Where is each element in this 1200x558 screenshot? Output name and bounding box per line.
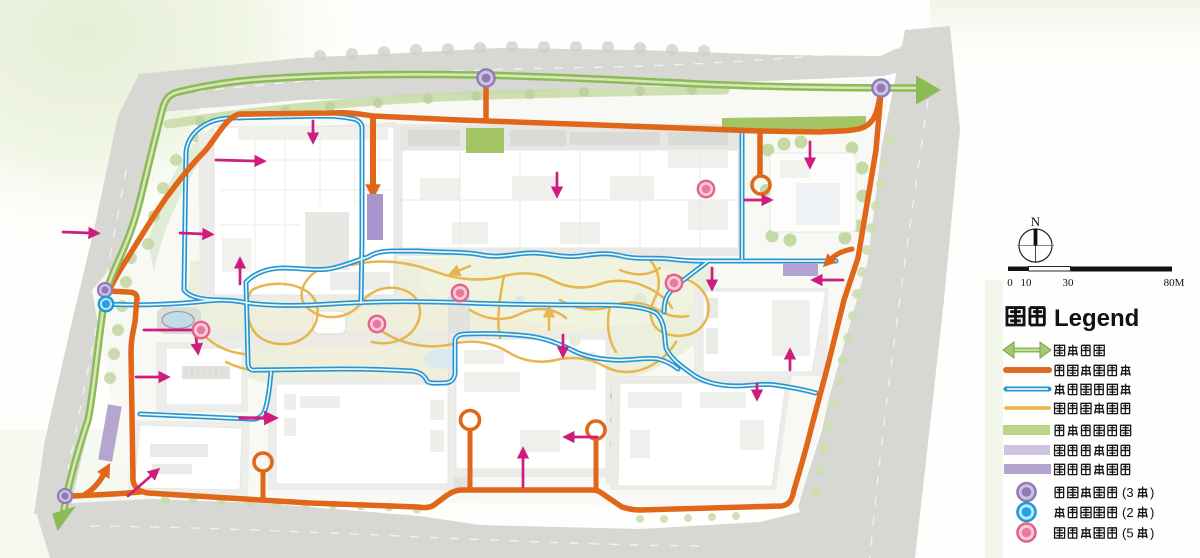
svg-text:Legend: Legend	[1054, 305, 1139, 332]
svg-text:0: 0	[1007, 277, 1013, 289]
svg-text:(5: (5	[1122, 526, 1134, 541]
svg-text:(3: (3	[1122, 485, 1134, 500]
svg-text:30: 30	[1063, 277, 1075, 289]
svg-text:(2: (2	[1122, 505, 1134, 520]
svg-text:): )	[1150, 526, 1154, 541]
svg-text:): )	[1150, 505, 1154, 520]
svg-text:N: N	[1031, 214, 1041, 229]
svg-text:10: 10	[1021, 277, 1033, 289]
svg-text:80M: 80M	[1164, 277, 1185, 289]
svg-text:): )	[1150, 485, 1154, 500]
